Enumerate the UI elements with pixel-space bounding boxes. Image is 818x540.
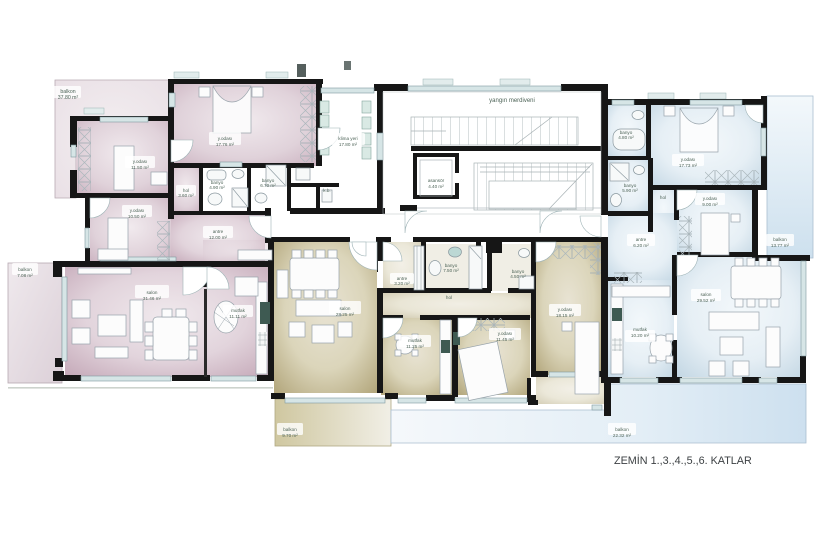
svg-text:31.46 m²: 31.46 m² xyxy=(143,296,162,301)
svg-text:balkon: balkon xyxy=(615,427,629,432)
svg-text:balkon: balkon xyxy=(18,267,32,272)
svg-text:y.odası: y.odası xyxy=(130,208,144,213)
svg-text:7.50 m²: 7.50 m² xyxy=(443,268,459,273)
svg-text:4.90 m²: 4.90 m² xyxy=(209,185,225,190)
svg-text:5.90 m²: 5.90 m² xyxy=(622,188,638,193)
svg-text:3.20 m²: 3.20 m² xyxy=(394,281,410,286)
svg-text:6.70 m²: 6.70 m² xyxy=(260,183,276,188)
svg-text:hol: hol xyxy=(660,195,666,200)
svg-text:7.08 m²: 7.08 m² xyxy=(17,273,33,278)
svg-text:6.20 m²: 6.20 m² xyxy=(633,243,649,248)
svg-text:y.odası: y.odası xyxy=(681,157,695,162)
svg-text:4.50 m²: 4.50 m² xyxy=(510,274,526,279)
svg-text:17.76 m²: 17.76 m² xyxy=(216,142,235,147)
svg-text:balkon: balkon xyxy=(283,427,297,432)
svg-text:klima yeri: klima yeri xyxy=(338,136,357,141)
svg-text:29.52 m²: 29.52 m² xyxy=(697,298,716,303)
svg-text:k.b.: k.b. xyxy=(323,188,330,193)
svg-text:y.odası: y.odası xyxy=(558,307,572,312)
svg-text:10.50 m²: 10.50 m² xyxy=(128,214,147,219)
svg-text:salon: salon xyxy=(701,292,712,297)
svg-text:11.45 m²: 11.45 m² xyxy=(496,337,514,342)
svg-text:3.60 m²: 3.60 m² xyxy=(178,193,194,198)
svg-text:9.00 m²: 9.00 m² xyxy=(702,202,718,207)
svg-text:balkon: balkon xyxy=(773,237,787,242)
svg-text:yangın merdiveni: yangın merdiveni xyxy=(489,98,535,104)
svg-text:salon: salon xyxy=(147,290,158,295)
svg-text:salon: salon xyxy=(340,306,351,311)
svg-text:y.odası: y.odası xyxy=(498,331,512,336)
svg-text:17.80 m²: 17.80 m² xyxy=(339,142,358,147)
svg-text:11.50 m²: 11.50 m² xyxy=(131,165,149,170)
svg-text:mutfak: mutfak xyxy=(231,308,245,313)
svg-text:4.80 m²: 4.80 m² xyxy=(618,135,634,140)
svg-text:17.73 m²: 17.73 m² xyxy=(679,163,698,168)
svg-text:y.odası: y.odası xyxy=(703,196,717,201)
svg-text:4.40 m²: 4.40 m² xyxy=(428,184,444,189)
svg-text:10.20 m²: 10.20 m² xyxy=(631,333,650,338)
svg-text:antre: antre xyxy=(636,237,647,242)
svg-text:hol: hol xyxy=(446,295,452,300)
svg-text:13.77 m²: 13.77 m² xyxy=(771,243,790,248)
svg-text:ZEMİN 1.,3.,4.,5.,6. KATLAR: ZEMİN 1.,3.,4.,5.,6. KATLAR xyxy=(614,454,752,467)
svg-text:9.70 m²: 9.70 m² xyxy=(282,433,298,438)
svg-text:28.25 m²: 28.25 m² xyxy=(336,312,355,317)
svg-text:11.11 m²: 11.11 m² xyxy=(229,314,247,319)
svg-text:mutfak: mutfak xyxy=(633,327,647,332)
svg-text:18.15 m²: 18.15 m² xyxy=(556,313,575,318)
svg-text:11.25 m²: 11.25 m² xyxy=(406,344,424,349)
svg-text:mutfak: mutfak xyxy=(408,338,422,343)
svg-text:y.odası: y.odası xyxy=(133,159,147,164)
svg-text:y.odası: y.odası xyxy=(218,136,232,141)
svg-text:22.32 m²: 22.32 m² xyxy=(613,433,632,438)
svg-text:antre: antre xyxy=(213,229,224,234)
svg-text:37.80 m²: 37.80 m² xyxy=(58,95,79,101)
svg-text:12.00 m²: 12.00 m² xyxy=(209,235,228,240)
svg-text:asansör: asansör xyxy=(428,178,445,183)
